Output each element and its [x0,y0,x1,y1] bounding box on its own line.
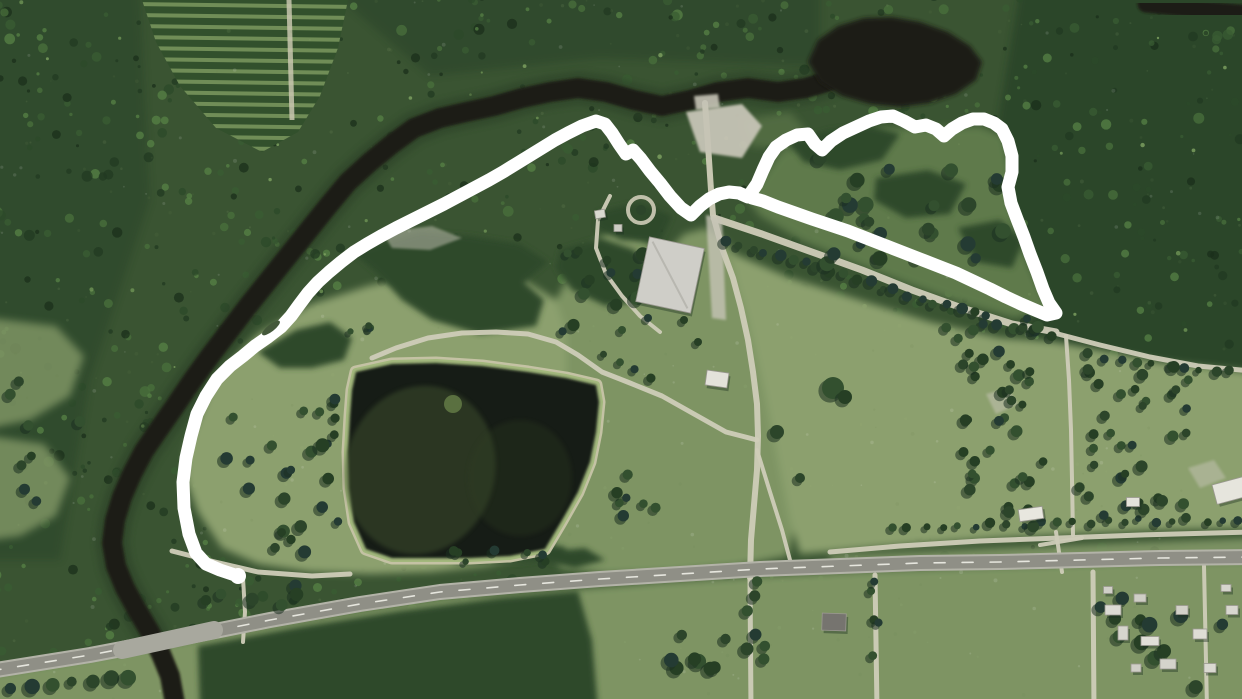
field-speckle [887,216,890,219]
bottom-center-trees [664,653,679,668]
field-speckle [212,232,215,235]
garden-area-trees [584,275,595,286]
canopy-speckle [1146,187,1152,193]
field-speckle [13,173,16,176]
east-grove-right [1100,411,1110,421]
entrance-road-south-trees [758,653,769,664]
field-speckle [233,159,237,163]
field-speckle [1005,425,1008,428]
field-speckle [1129,22,1131,24]
canopy-speckle [503,206,514,217]
field-speckle [940,577,942,579]
canopy-speckle [1142,195,1151,204]
field-speckle [236,421,238,423]
grove-bottom-row [1087,520,1096,529]
small-shed [1127,498,1140,507]
west-meadow-trees [243,483,255,495]
field-speckle [571,227,573,229]
canopy-speckle [1141,236,1145,240]
canopy-speckle [168,98,172,102]
canopy-speckle [1160,220,1165,225]
canopy-speckle [743,28,748,33]
left-clearing-trees [14,376,24,386]
canopy-speckle [61,415,67,421]
west-meadow-trees [220,452,233,465]
canopy-speckle [674,70,679,75]
field-speckle [1115,32,1118,35]
loop-interior-trees [971,253,981,263]
field-speckle [318,599,321,602]
canopy-speckle [730,215,736,221]
east-grove-left [1007,396,1017,406]
canopy-speckle [1155,302,1163,310]
grove-bottom-row [940,524,947,531]
field-speckle [151,157,153,159]
field-speckle [273,435,275,437]
field-speckle [162,202,165,205]
diagonal-road-tree-row [734,242,742,250]
left-corner-row [67,677,77,687]
canopy-speckle [768,13,776,21]
field-speckle [56,374,59,377]
canopy-speckle [108,329,113,334]
field-speckle [168,211,171,214]
canopy-speckle [478,52,485,59]
field-speckle [1082,473,1084,475]
canopy-speckle [27,89,30,92]
grove-bottom-row [954,522,961,529]
grove-bottom-row [1053,517,1062,526]
canopy-speckle [336,244,345,253]
diagonal-road-tree-row [902,292,912,302]
loop-interior-trees [827,247,840,260]
canopy-speckle [18,76,27,85]
east-grove-left [964,484,976,496]
canopy-speckle [496,571,501,576]
west-meadow-trees [278,492,290,504]
field-speckle [58,288,61,291]
loop-interior-trees [960,236,975,251]
entrance-road-south-trees [749,590,760,601]
left-clearing-trees [17,460,27,470]
east-grove-left [941,323,951,333]
field-speckle [1105,470,1107,472]
field-speckle [735,341,739,345]
east-road-tree-row [1224,366,1234,376]
field-speckle [617,186,619,188]
grove-bottom-row [1233,516,1242,525]
canopy-speckle [1072,273,1081,282]
field-speckle [192,193,194,195]
canopy-speckle [1214,265,1219,270]
aerial-imagery [0,0,1242,699]
canopy-speckle [166,590,169,593]
field-speckle [686,46,690,50]
field-speckle [179,136,182,139]
field-speckle [1232,34,1235,37]
highway-mid-trees [524,549,531,556]
canopy-speckle [4,219,11,226]
field-speckle [744,385,748,389]
field-speckle [610,9,613,12]
left-corner-row [86,675,100,689]
bottom-center-trees [704,662,718,676]
field-speckle [929,538,931,540]
field-speckle [592,325,594,327]
field-speckle [950,409,954,413]
canopy-speckle [1193,113,1204,124]
mobile-home-7 [1226,606,1238,615]
canopy-speckle [835,16,839,20]
field-speckle [1106,447,1108,449]
field-speckle [736,5,739,8]
field-speckle [1076,509,1078,511]
field-speckle [124,351,126,353]
field-speckle [576,524,579,527]
canopy-speckle [1113,18,1119,24]
field-speckle [886,4,889,7]
canopy-speckle [737,19,746,28]
canopy-speckle [1137,228,1145,236]
field-speckle [610,537,613,540]
canopy-highlight [324,253,326,255]
canopy-speckle [100,220,108,228]
diagonal-road-tree-row [750,246,758,254]
field-speckle [1046,31,1049,34]
field-speckle [1193,153,1195,155]
field-speckle [1140,455,1142,457]
canopy-speckle [4,583,12,591]
grove-bottom-row [1219,517,1226,524]
field-speckle [1166,220,1169,223]
canopy-speckle [547,19,552,24]
pond-road-row [646,374,655,383]
canopy-speckle [1207,301,1213,307]
canopy-speckle [192,584,196,588]
field-speckle [135,79,139,83]
canopy-speckle [138,65,141,68]
canopy-speckle [487,19,491,23]
diagonal-road-tree-row [970,307,979,316]
canopy-speckle [403,69,408,74]
field-speckle [721,103,723,105]
yard-trees-bottom-right [1189,680,1203,694]
canopy-speckle [83,250,90,257]
canopy-speckle [56,278,60,282]
field-speckle [898,598,900,600]
field-speckle [858,673,861,676]
canopy-speckle [1091,57,1098,64]
pond-island [444,395,462,413]
canopy-speckle [1037,154,1040,157]
garden-area-trees [567,319,579,331]
field-speckle [1008,20,1011,23]
left-corner-row [104,670,120,686]
field-speckle [1080,180,1084,184]
mobile-home-10 [1204,664,1216,673]
east-grove-left [1005,385,1014,394]
canopy-speckle [1052,145,1058,151]
diagonal-road-tree-row [775,250,787,262]
field-speckle [20,372,22,374]
west-meadow-trees [334,517,342,525]
field-speckle [904,417,907,420]
canopy-speckle [121,330,130,339]
ramp-pad [694,94,720,110]
highway-mid-trees [449,546,459,556]
entrance-road-south-trees [750,629,762,641]
canopy-speckle [1212,31,1222,41]
field-speckle [5,301,7,303]
west-meadow-trees [298,545,311,558]
field-speckle [820,280,823,283]
field-speckle [313,150,317,154]
canopy-highlight [536,117,539,120]
field-speckle [733,579,735,581]
canopy-speckle [111,345,118,352]
field-speckle [1032,607,1036,611]
west-meadow-trees [322,473,334,485]
canopy-speckle [526,7,530,11]
field-speckle [782,60,785,63]
bottom-center-trees [688,652,701,665]
canopy-speckle [1114,272,1120,278]
loop-interior-trees [991,173,1003,185]
garden-cottage-2 [614,225,622,232]
garden-area-trees [559,327,567,335]
canopy-speckle [63,93,72,102]
canopy-speckle [87,461,91,465]
canopy-speckle [83,469,87,473]
left-corner-row [46,678,60,692]
east-grove-right [1182,404,1191,413]
field-speckle [251,398,253,400]
field-speckle [92,389,96,393]
field-speckle [216,325,218,327]
canopy-speckle [1043,54,1052,63]
field-speckle [767,286,769,288]
canopy-speckle [563,144,573,154]
field-speckle [142,493,145,496]
canopy-speckle [1167,256,1171,260]
canopy-speckle [1096,15,1099,18]
mobile-home-9 [1131,664,1141,672]
canopy-speckle [507,19,517,29]
canopy-speckle [1023,65,1027,69]
field-speckle [561,4,564,7]
canopy-speckle [239,163,249,173]
diagonal-road-tree-row [991,319,1002,330]
field-speckle [936,440,939,443]
loop-interior-trees [858,197,874,213]
field-speckle [1147,193,1149,195]
canopy-speckle [245,576,255,586]
canopy-speckle [437,46,442,51]
canopy-speckle [295,186,302,193]
field-shed-group [705,370,731,391]
east-grove-left [970,456,981,467]
west-meadow-south-trees [216,589,227,600]
canopy-speckle [37,113,44,120]
field-speckle [707,692,710,695]
canopy-speckle [152,116,161,125]
canopy-speckle [695,72,699,76]
field-speckle [797,103,800,106]
canopy-speckle [568,0,576,8]
canopy-speckle [244,229,251,236]
pond-east-trees [639,499,648,508]
canopy-speckle [152,84,156,88]
field-speckle [809,485,811,487]
canopy-speckle [1153,239,1156,242]
pond-east-trees [651,503,661,513]
field-speckle [680,5,683,8]
east-grove-right [1184,375,1193,384]
canopy-speckle [134,399,143,408]
canopy-speckle [814,106,823,115]
canopy-speckle [704,30,710,36]
west-meadow-trees [229,413,238,422]
canopy-speckle [480,13,484,17]
field-speckle [781,580,783,582]
west-meadow-trees [270,543,280,553]
loop-interior-trees [929,200,940,211]
field-speckle [815,354,817,356]
field-speckle [290,30,294,34]
canopy-speckle [431,53,438,60]
field-speckle [673,381,675,383]
canopy-speckle [37,427,44,434]
field-speckle [1023,99,1026,102]
loop-interior-trees [873,251,888,266]
canopy-speckle [1207,251,1214,258]
canopy-speckle [1133,203,1137,207]
field-speckle [25,619,28,622]
east-grove-right [1139,402,1147,410]
east-grove-left [1023,315,1031,323]
diagonal-road-tree-row [802,257,810,265]
canopy-speckle [735,204,745,214]
field-speckle [845,554,849,558]
east-road-tree-row [1179,363,1189,373]
field-speckle [339,477,342,480]
field-speckle [1078,224,1081,227]
canopy-speckle [411,53,420,62]
lone-tree [694,338,702,346]
field-speckle [1216,216,1220,220]
canopy-highlight [130,288,134,292]
west-meadow-trees [299,407,308,416]
bottom-center-trees [677,630,687,640]
yard-trees-bottom-right [1217,619,1228,630]
canopy-highlight [409,96,413,100]
mobile-home-5 [1176,606,1188,615]
east-grove-left [1006,360,1015,369]
canopy-speckle [1063,193,1071,201]
field-speckle [883,310,886,313]
canopy-speckle [255,575,261,581]
canopy-speckle [739,179,745,185]
canopy-speckle [1023,102,1031,110]
east-grove-right [1094,379,1104,389]
mobile-home-2-group [1134,594,1148,605]
canopy-speckle [665,124,668,127]
field-speckle [1078,665,1080,667]
canopy-speckle [475,27,479,31]
canopy-highlight [1157,37,1159,39]
field-speckle [148,196,151,199]
canopy-speckle [1191,259,1195,263]
field-speckle [1150,178,1153,181]
field-speckle [603,486,606,489]
canopy-speckle [171,603,180,612]
grove-bottom-row [888,523,896,531]
field-speckle [26,101,28,103]
field-speckle [977,656,979,658]
field-speckle [577,331,579,333]
canopy-speckle [81,434,86,439]
east-grove-left [1003,506,1015,518]
east-grove-right [1167,431,1178,442]
canopy-speckle [1231,98,1239,106]
diagonal-road-tree-row [721,236,732,247]
grove-bottom-row [902,523,911,532]
canopy-speckle [1149,40,1155,46]
garden-area-trees [578,288,590,300]
canopy-speckle [77,497,85,505]
canopy-speckle [158,91,167,100]
canopy-speckle [1053,100,1061,108]
canopy-speckle [1035,19,1039,23]
pond-east-trees [622,494,630,502]
canopy-speckle [44,301,53,310]
canopy-speckle [823,106,830,113]
canopy-speckle [1032,70,1037,75]
field-speckle [1051,467,1055,471]
field-speckle [1147,427,1150,430]
canopy-speckle [102,116,110,124]
field-speckle [220,501,223,504]
canopy-speckle [85,639,92,646]
field-speckle [726,654,730,658]
canopy-speckle [1212,45,1219,52]
canopy-speckle [1113,286,1120,293]
canopy-speckle [261,237,271,247]
canopy-speckle [711,44,718,51]
field-speckle [806,433,809,436]
canopy-speckle [1078,147,1085,154]
field-speckle [1119,370,1121,372]
canopy-speckle [546,163,549,166]
canopy-speckle [145,411,148,414]
field-speckle [1106,109,1108,111]
field-speckle [460,579,462,581]
diagonal-road-tree-row [982,311,990,319]
canopy-speckle [68,565,78,575]
lone-tree [838,390,852,404]
canopy-speckle [227,212,234,219]
canopy-speckle [1218,271,1227,280]
garden-area-trees [603,256,612,265]
field-speckle [725,22,729,26]
field-speckle [872,350,874,352]
canopy-speckle [692,141,696,145]
field-speckle [1223,348,1226,351]
canopy-speckle [5,20,15,30]
west-meadow-trees [294,520,307,533]
circular-garden-center-tree [636,205,646,215]
canopy-speckle [471,196,478,203]
